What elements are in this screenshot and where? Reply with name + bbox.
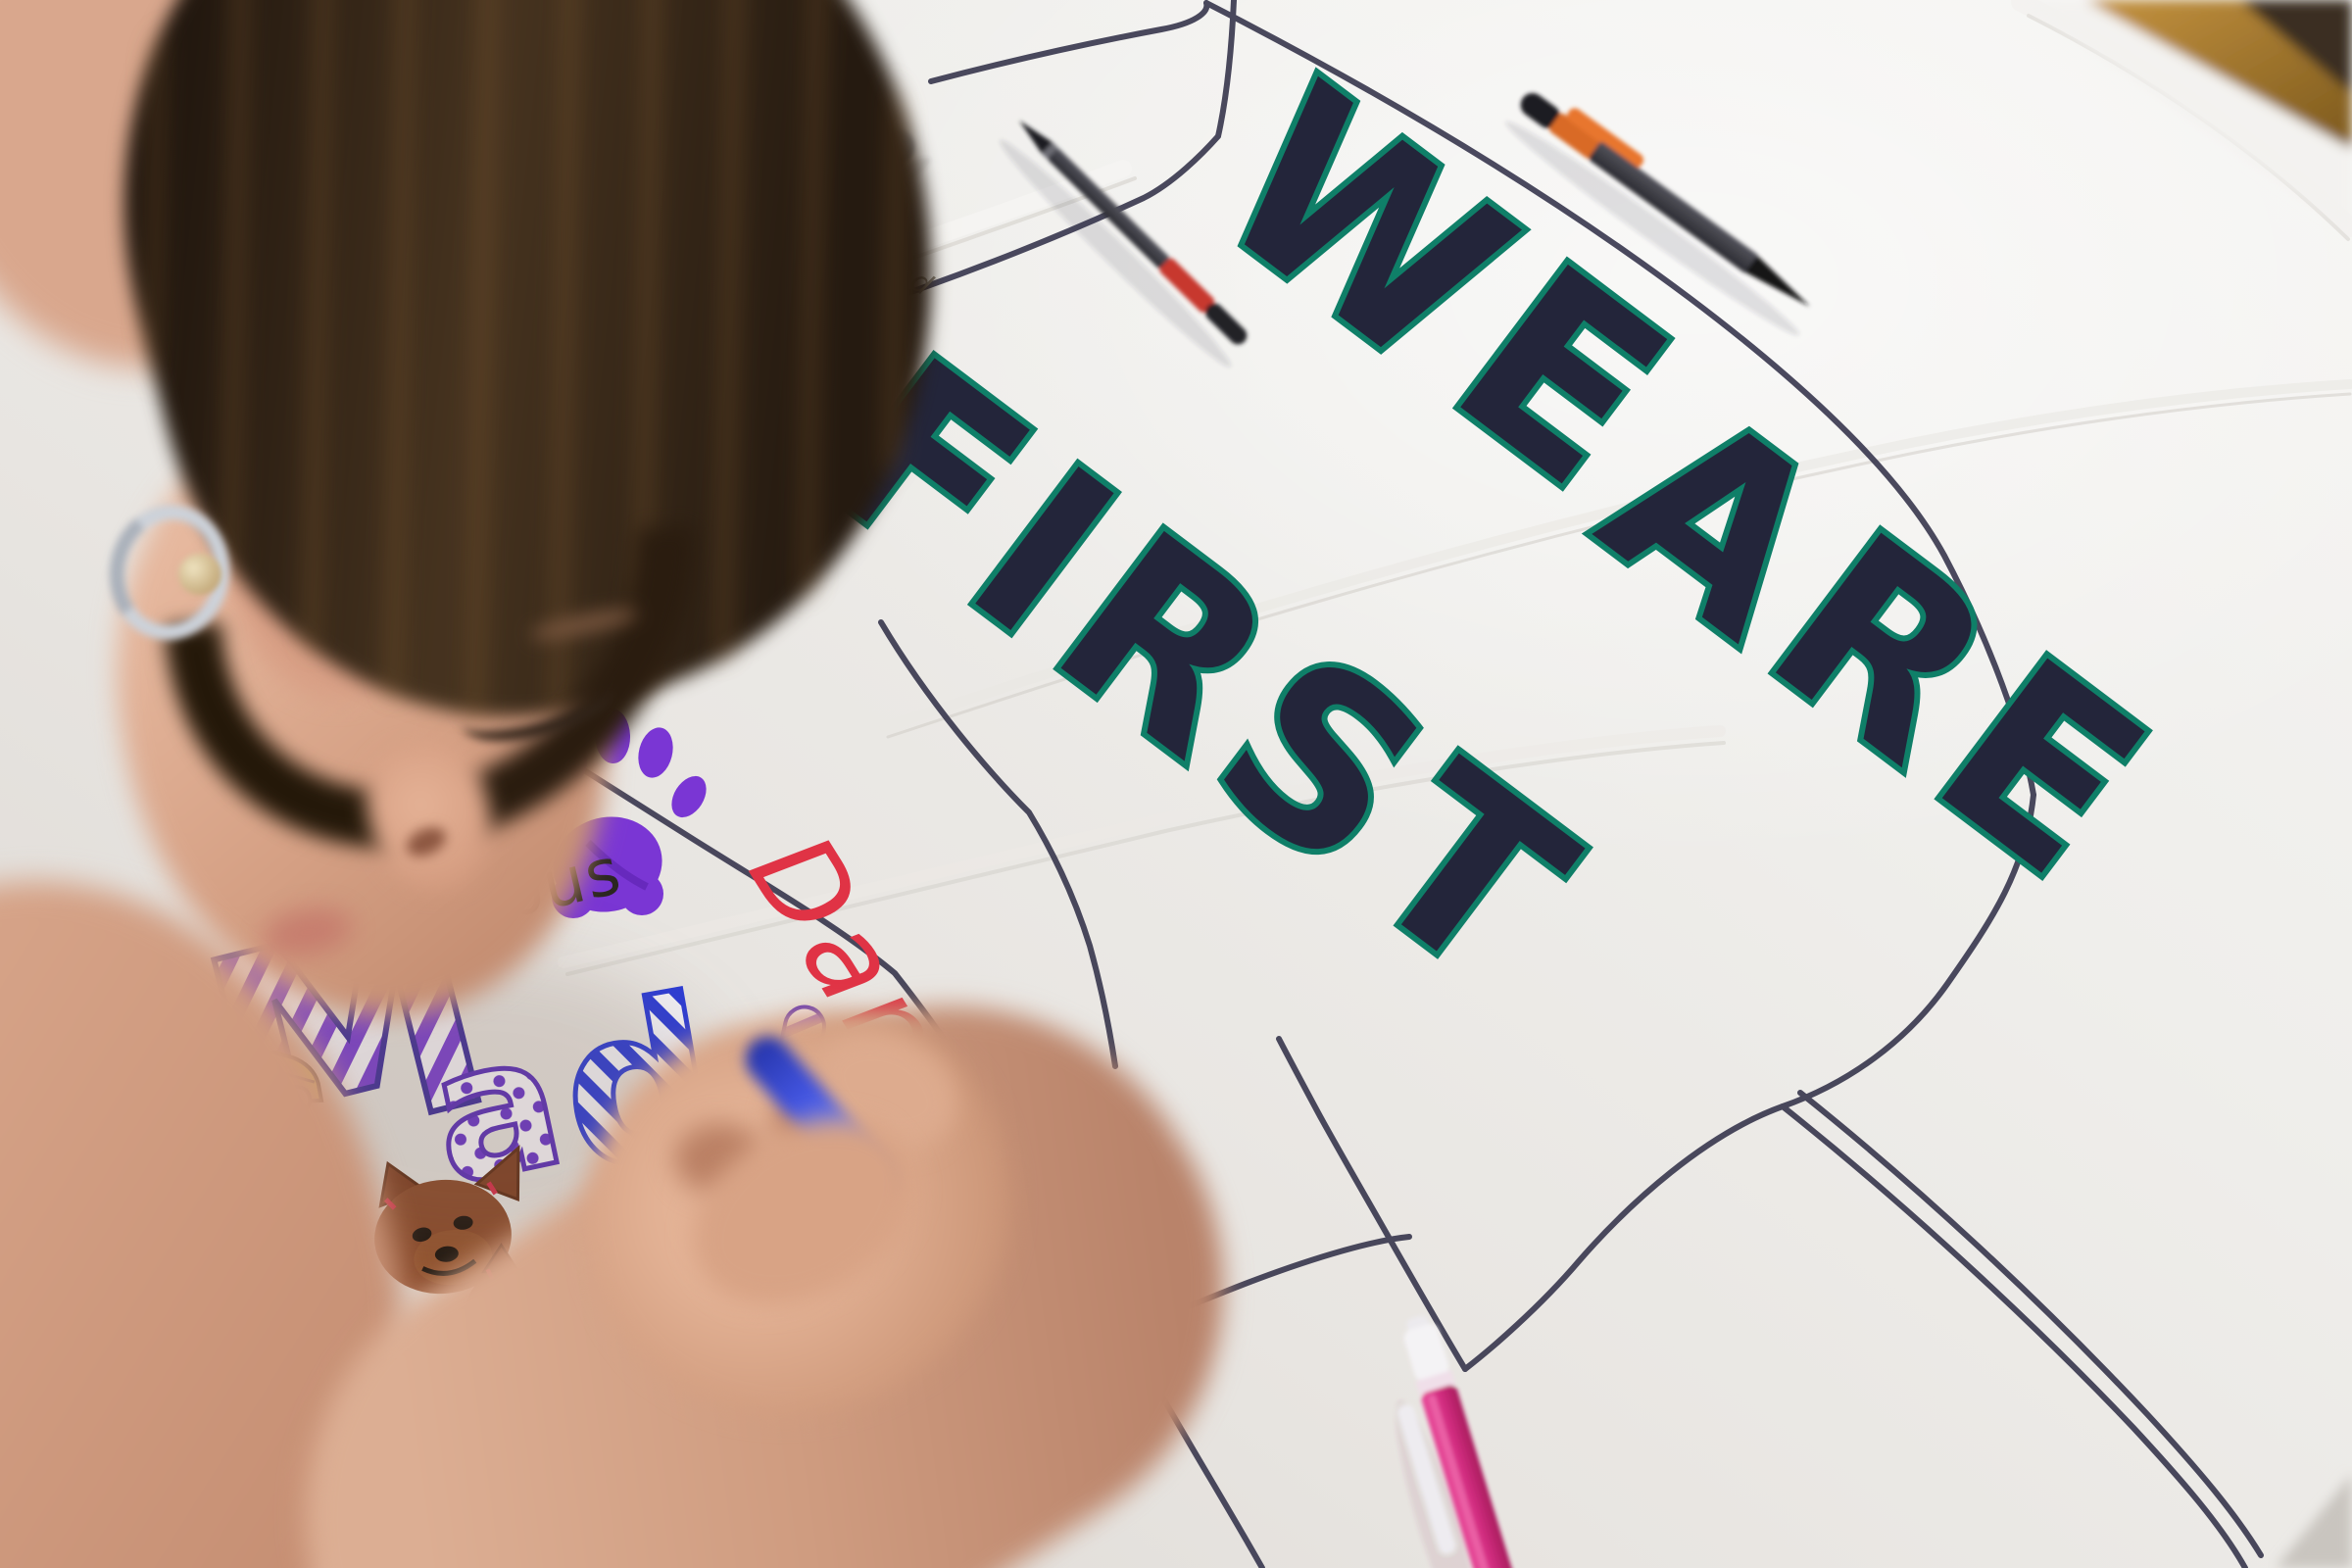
- word-are: ARE: [1556, 356, 2208, 943]
- table-corner-bottom-right: [2276, 1474, 2352, 1568]
- earring-stud: [178, 554, 221, 595]
- table-corner-top-right: [2019, 0, 2352, 230]
- photo-banner-scene: Believed Could ID ! WE ARE FIRST: [0, 0, 2352, 1568]
- pink-marker: [1359, 1312, 1530, 1568]
